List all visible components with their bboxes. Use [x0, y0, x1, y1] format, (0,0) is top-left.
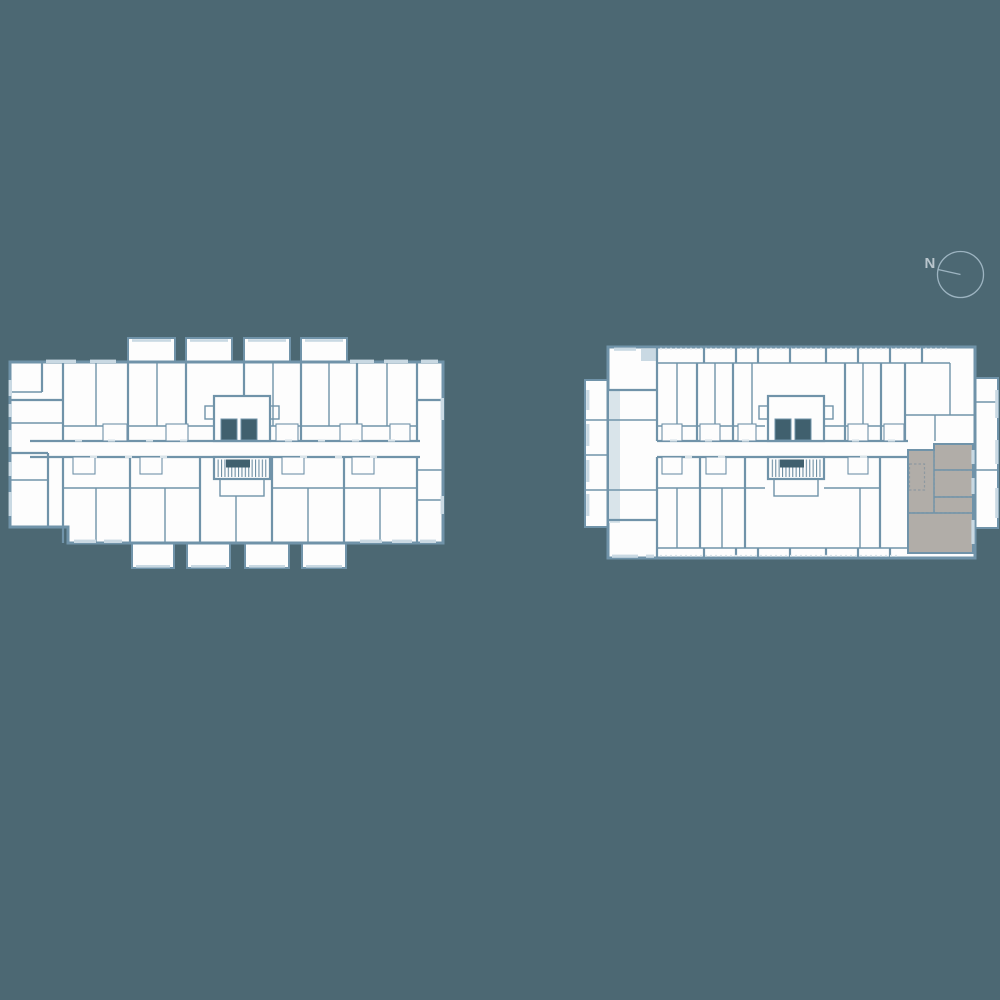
elevator-shaft: [241, 419, 257, 440]
unit-room: [934, 444, 973, 470]
floor-plan-right[interactable]: [585, 347, 998, 558]
floor-plans-canvas: N: [0, 0, 1000, 1000]
elevator-shaft: [775, 419, 791, 440]
north-label: N: [925, 255, 936, 272]
balconies-top: [128, 338, 347, 362]
elevator-core-right: [759, 396, 833, 441]
highlighted-unit[interactable]: [908, 444, 975, 553]
floor-plan-left[interactable]: [9, 338, 444, 568]
elevator-shaft: [221, 419, 237, 440]
site-plan-stage: N: [0, 0, 1000, 1000]
building-outline-left: [10, 362, 443, 543]
unit-room: [934, 470, 973, 497]
balconies-bottom: [132, 543, 346, 568]
wing-right: [975, 378, 998, 528]
loggia-strip: [609, 390, 620, 523]
elevator-core-left: [205, 396, 279, 441]
elevator-shaft: [795, 419, 811, 440]
unit-room: [934, 497, 973, 513]
unit-hall: [908, 450, 934, 513]
compass-needle: [938, 270, 961, 275]
compass: N: [925, 252, 984, 298]
unit-room: [908, 513, 973, 553]
